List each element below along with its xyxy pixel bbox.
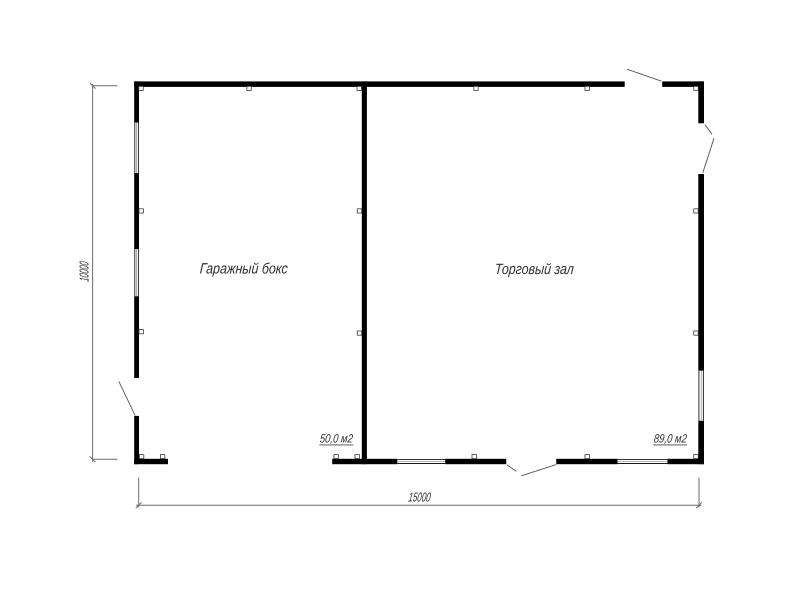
svg-text:89,0 м2: 89,0 м2 bbox=[653, 432, 688, 446]
svg-text:15000: 15000 bbox=[408, 490, 433, 505]
svg-text:10000: 10000 bbox=[77, 260, 92, 283]
svg-text:Гаражный бокс: Гаражный бокс bbox=[199, 261, 289, 278]
svg-text:Торговый зал: Торговый зал bbox=[494, 261, 575, 278]
svg-text:50,0 м2: 50,0 м2 bbox=[319, 432, 354, 446]
